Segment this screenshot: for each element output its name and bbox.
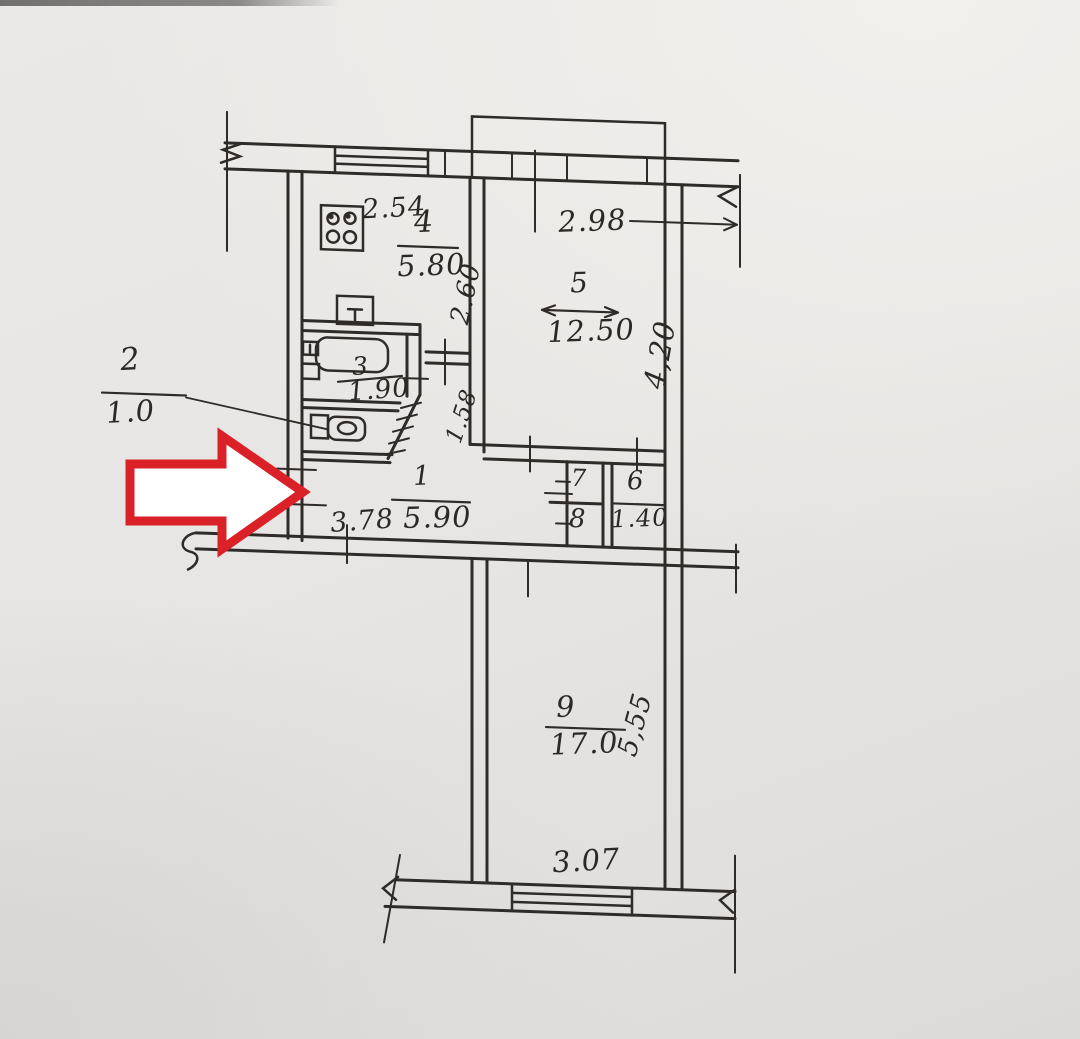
floor-plan-photo: 2.54 4 5.80 2.60 2.98 5 12.50 4,20 3 1.9… <box>0 0 1080 1039</box>
red-arrow-right-icon <box>130 436 303 549</box>
pointer-overlay <box>0 0 1080 1039</box>
